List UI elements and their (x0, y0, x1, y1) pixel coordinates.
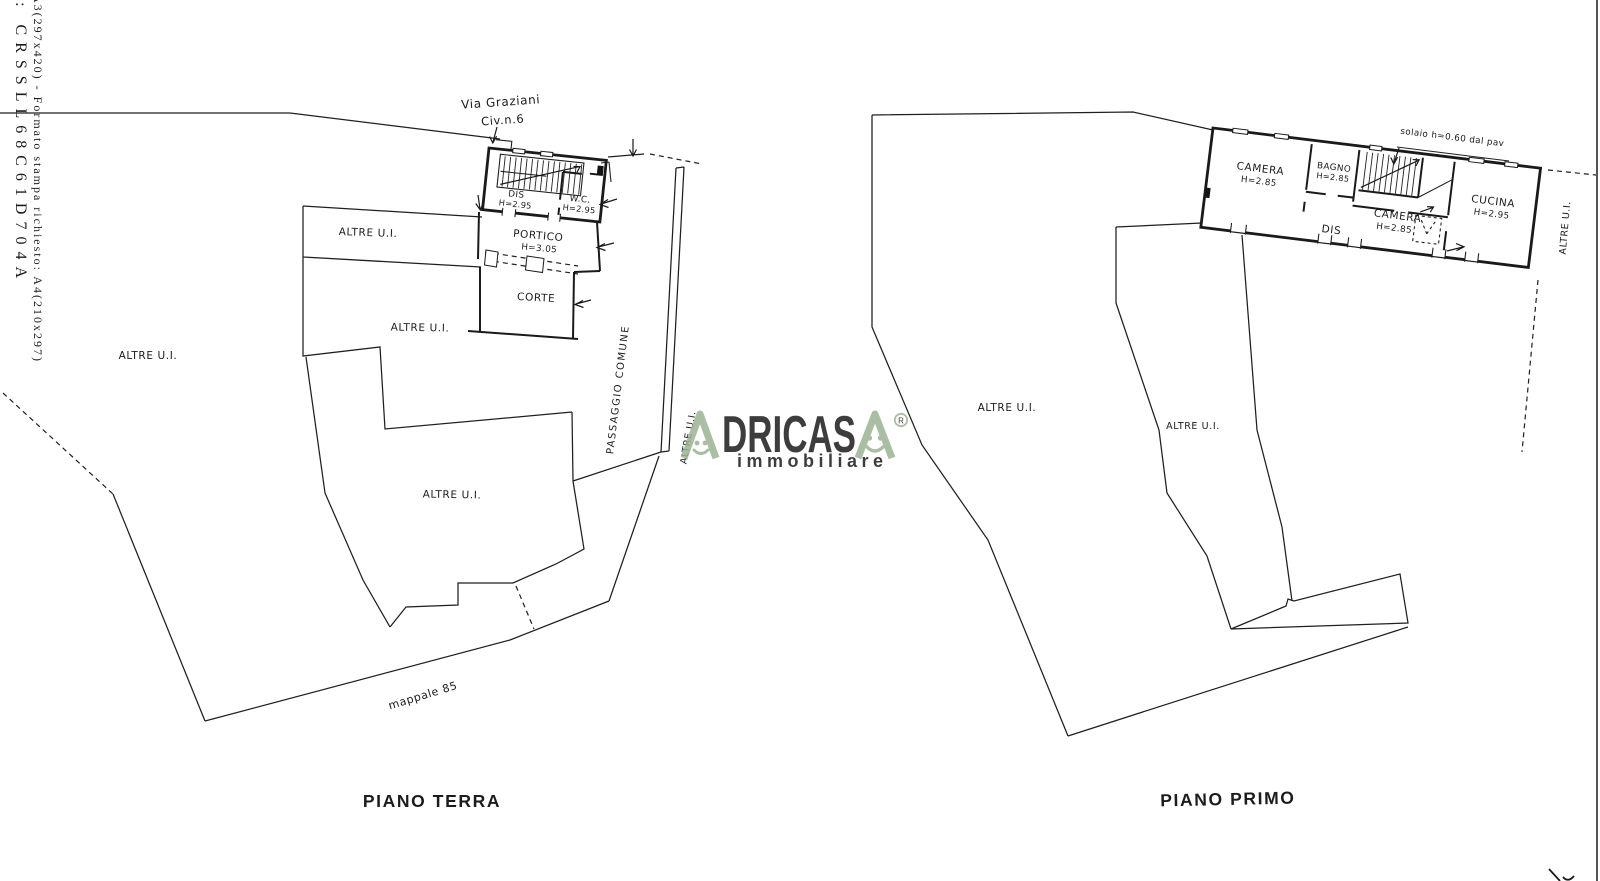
primo-floor-hatch (1413, 205, 1443, 244)
region-label-altre-ui-1: ALTRE U.I. (978, 402, 1037, 414)
region-label-passaggio-comune: PASSAGGIO COMUNE (605, 325, 632, 455)
region-label-altre-ui-2: ALTRE U.I. (1166, 421, 1220, 432)
plan-piano-terra: DIS H=2.95 W.C. H=2.95 Via Graziani Civ.… (0, 92, 702, 811)
logo-face-smile-2 (694, 450, 708, 454)
region-label-altre-ui-3: ALTRE U.I. (119, 350, 178, 362)
terra-parcel-boundary (0, 113, 702, 721)
scanned-floorplan-page: DIS H=2.95 W.C. H=2.95 Via Graziani Civ.… (0, 0, 1600, 881)
room-height-portico: H=3.05 (521, 242, 558, 255)
plan-title-piano-primo: PIANO PRIMO (1160, 788, 1296, 811)
primo-stairs (1361, 152, 1420, 196)
margin-format-text: A3(297x420) - Formato stampa richiesto: … (31, 0, 45, 363)
annotation-solaio: solaio h=0.60 dal pav (1400, 127, 1505, 150)
room-label-corte: CORTE (517, 291, 556, 305)
primo-door-arrow (1447, 244, 1464, 252)
room-height-dis: H=2.95 (498, 197, 532, 210)
scan-marks (1549, 869, 1574, 881)
region-label-altre-ui-1: ALTRE U.I. (339, 226, 398, 240)
terra-building: DIS H=2.95 W.C. H=2.95 (482, 139, 607, 226)
region-label-altre-ui-4: ALTRE U.I. (423, 488, 482, 501)
primo-inner-regions (1116, 223, 1408, 629)
room-label-portico: PORTICO (513, 228, 564, 244)
room-height-camera1: H=2.85 (1240, 175, 1277, 189)
civic-number-label: Civ.n.6 (481, 112, 525, 129)
region-label-altre-ui-2: ALTRE U.I. (391, 321, 450, 334)
floorplan-drawing: DIS H=2.95 W.C. H=2.95 Via Graziani Civ.… (0, 0, 1600, 881)
registered-mark-r: R (898, 417, 904, 426)
terra-wall-block (597, 165, 604, 175)
street-label: Via Graziani (461, 92, 541, 111)
room-height-wc: H=2.95 (562, 202, 596, 215)
plan-piano-primo: CAMERA H=2.85 BAGNO H=2.85 CAMERA H=2.85… (872, 112, 1596, 810)
parcel-label-mappale: mappale 85 (387, 679, 459, 712)
watermark-logo: DRICAS immobiliare R (684, 406, 907, 471)
terra-inner-regions (303, 206, 600, 627)
region-label-altre-ui-3: ALTRE U.I. (1558, 201, 1574, 255)
logo-subtitle: immobiliare (737, 451, 888, 471)
room-height-cucina: H=2.95 (1473, 207, 1510, 221)
margin-code-text: e: CRSSLL68C61D704A (12, 0, 29, 285)
room-height-camera2: H=2.85 (1376, 222, 1413, 236)
portico-pillar (526, 256, 545, 273)
room-label-dis: DIS (1321, 223, 1342, 237)
portico-pillar (485, 250, 499, 267)
margin-texts: e: CRSSLL68C61D704A A3(297x420) - Format… (12, 0, 45, 363)
plan-title-piano-terra: PIANO TERRA (363, 791, 501, 811)
